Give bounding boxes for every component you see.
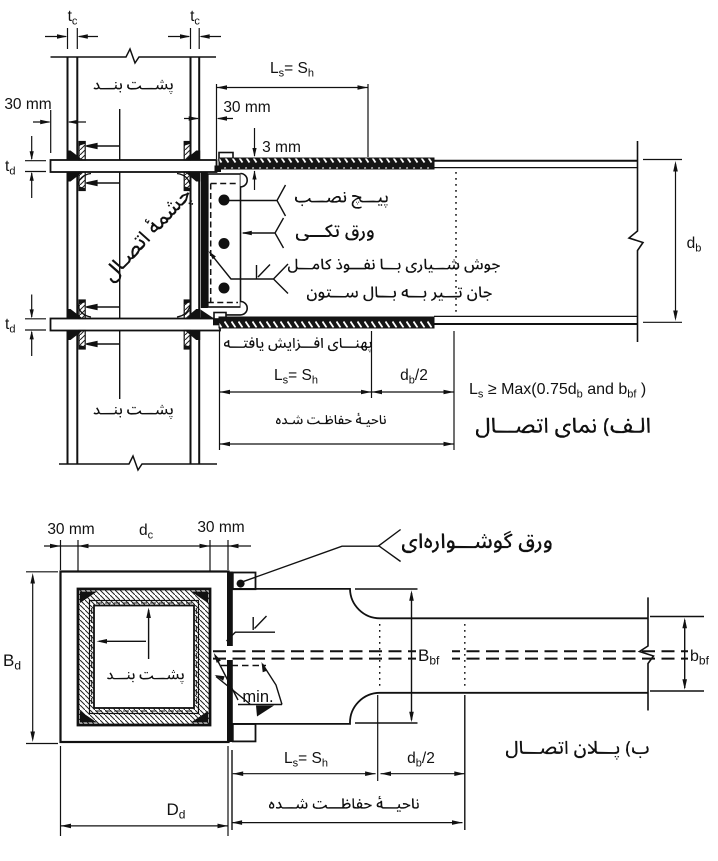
svg-text:3 mm: 3 mm [262, 139, 301, 156]
svg-text:min.: min. [242, 688, 273, 706]
svg-text:30 mm: 30 mm [4, 96, 51, 113]
svg-text:db​/2: db​/2 [400, 367, 428, 387]
svg-text:Ls​= Sh​: Ls​= Sh​ [274, 367, 318, 387]
svg-text:30 mm: 30 mm [47, 521, 94, 538]
svg-text:Ls​= Sh​: Ls​= Sh​ [270, 60, 314, 80]
svg-text:Ls​ ≥ Max(0.75db​ and bbf​ ): Ls​ ≥ Max(0.75db​ and bbf​ ) [469, 381, 646, 401]
svg-text:30 mm: 30 mm [223, 99, 270, 116]
svg-text:db​/2: db​/2 [407, 750, 435, 770]
svg-text:30 mm: 30 mm [197, 519, 244, 536]
svg-text:Ls​= Sh​: Ls​= Sh​ [284, 750, 328, 770]
